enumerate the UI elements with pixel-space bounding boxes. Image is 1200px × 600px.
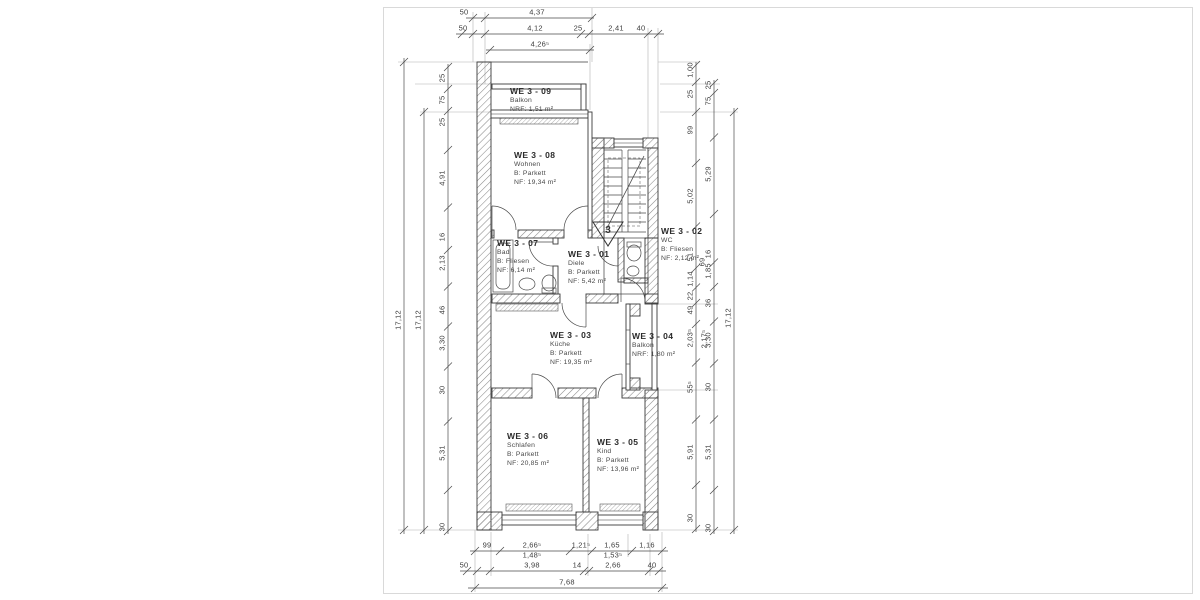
room-info-line: Wohnen bbox=[514, 161, 556, 170]
dimension-label: 2,66 bbox=[605, 561, 620, 570]
room-info-line: NF: 5,42 m² bbox=[568, 278, 609, 287]
dimension-label: 30 bbox=[438, 523, 447, 532]
dimension-label: 40 bbox=[637, 24, 646, 33]
room-label: WE 3 - 06SchlafenB: ParkettNF: 20,85 m² bbox=[507, 431, 549, 469]
room-info-line: NF: 13,96 m² bbox=[597, 466, 639, 475]
room-info-line: B: Fliesen bbox=[661, 246, 702, 255]
dimension-label: 25 bbox=[704, 81, 713, 90]
wc-sink-icon bbox=[627, 266, 639, 276]
dimension-label: 50 bbox=[460, 561, 469, 570]
room-info-line: B: Fliesen bbox=[497, 258, 538, 267]
wc-toilet-bowl-icon bbox=[627, 245, 641, 261]
dimension-label: 5,31 bbox=[704, 444, 713, 459]
dimension-label: 25 bbox=[574, 24, 583, 33]
dimension-label: 99 bbox=[483, 541, 492, 550]
room-info-line: B: Parkett bbox=[550, 350, 592, 359]
dimension-label: 5,31 bbox=[438, 445, 447, 460]
room-info-line: Kind bbox=[597, 448, 639, 457]
room-id: WE 3 - 01 bbox=[568, 249, 609, 260]
room-info-line: Balkon bbox=[510, 97, 553, 106]
room-label: WE 3 - 02WCB: FliesenNF: 2,12 m² bbox=[661, 226, 702, 264]
room-info-line: NRF: 1,51 m² bbox=[510, 106, 553, 115]
room-id: WE 3 - 03 bbox=[550, 330, 592, 341]
room-id: WE 3 - 06 bbox=[507, 431, 549, 442]
room-info-line: B: Parkett bbox=[507, 451, 549, 460]
dimension-label: 50 bbox=[460, 8, 469, 17]
room-label: WE 3 - 09BalkonNRF: 1,51 m² bbox=[510, 86, 553, 115]
room-id: WE 3 - 08 bbox=[514, 150, 556, 161]
dimension-label: 14 bbox=[573, 561, 582, 570]
dimension-label: 22 bbox=[686, 292, 695, 301]
dimension-label: 1,16 bbox=[639, 541, 654, 550]
dimension-label: 4,12 bbox=[527, 24, 542, 33]
room-info-line: Schlafen bbox=[507, 442, 549, 451]
dimension-label: 3,30 bbox=[438, 335, 447, 350]
room-info-line: NF: 19,35 m² bbox=[550, 359, 592, 368]
dimension-label: 55⁵ bbox=[686, 381, 695, 393]
dimension-label: 30 bbox=[438, 386, 447, 395]
dimension-label: 25 bbox=[686, 90, 695, 99]
dimension-label: 4,26⁵ bbox=[531, 40, 550, 49]
dimension-label: 1,48⁵ bbox=[523, 551, 542, 560]
storey-number: 3 bbox=[605, 225, 611, 236]
dimension-label: 4,37 bbox=[529, 8, 544, 17]
dimension-label: 2,17⁵ bbox=[700, 330, 709, 349]
dimension-label: 50 bbox=[459, 24, 468, 33]
dimension-label: 3,98 bbox=[524, 561, 539, 570]
room-id: WE 3 - 07 bbox=[497, 238, 538, 249]
dimension-label: 25 bbox=[438, 118, 447, 127]
dimension-label: 75 bbox=[704, 97, 713, 106]
room-info-line: NF: 6,14 m² bbox=[497, 267, 538, 276]
dimension-label: 75 bbox=[438, 96, 447, 105]
room-label: WE 3 - 04BalkonNRF: 1,80 m² bbox=[632, 331, 675, 360]
staircase bbox=[604, 150, 646, 232]
dimension-label: 36 bbox=[704, 299, 713, 308]
room-info-line: Balkon bbox=[632, 342, 675, 351]
room-info-line: NF: 19,34 m² bbox=[514, 179, 556, 188]
room-info-line: NF: 2,12 m² bbox=[661, 255, 702, 264]
wc-toilet-tank-icon bbox=[627, 242, 641, 247]
dimension-label: 17,12 bbox=[724, 308, 733, 328]
floorplan-sheet: 3 504,37504,12252,41404,26⁵992,66⁵1,21⁵1… bbox=[0, 0, 1200, 600]
room-info-line: Küche bbox=[550, 341, 592, 350]
dimension-label: 16 bbox=[438, 233, 447, 242]
room-id: WE 3 - 05 bbox=[597, 437, 639, 448]
room-label: WE 3 - 07BadB: FliesenNF: 6,14 m² bbox=[497, 238, 538, 276]
room-info-line: B: Parkett bbox=[568, 269, 609, 278]
dimension-label: 2,13 bbox=[438, 255, 447, 270]
dimension-label: 49 bbox=[686, 306, 695, 315]
dimension-label: 25 bbox=[438, 74, 447, 83]
dimension-label: 4,91 bbox=[438, 170, 447, 185]
sink-icon bbox=[519, 278, 535, 290]
dimension-label: 46 bbox=[438, 306, 447, 315]
dimension-label: 17,12 bbox=[394, 310, 403, 330]
dimension-label: 5,29 bbox=[704, 166, 713, 181]
dimension-label: 1,53⁵ bbox=[604, 551, 623, 560]
room-info-line: B: Parkett bbox=[514, 170, 556, 179]
dimension-label: 2,66⁵ bbox=[523, 541, 542, 550]
room-label: WE 3 - 03KücheB: ParkettNF: 19,35 m² bbox=[550, 330, 592, 368]
room-id: WE 3 - 02 bbox=[661, 226, 702, 237]
dimension-label: 30 bbox=[704, 524, 713, 533]
dimension-label: 17,12 bbox=[414, 310, 423, 330]
dimension-label: 99 bbox=[686, 126, 695, 135]
room-label: WE 3 - 01DieleB: ParkettNF: 5,42 m² bbox=[568, 249, 609, 287]
dimension-label: 2,41 bbox=[608, 24, 623, 33]
dimension-label: 30 bbox=[704, 383, 713, 392]
dimension-label: 30 bbox=[686, 514, 695, 523]
dimension-label: 1,65 bbox=[604, 541, 619, 550]
dimension-label: 5,02 bbox=[686, 188, 695, 203]
dimension-label: 1,21⁵ bbox=[572, 541, 591, 550]
room-info-line: NF: 20,85 m² bbox=[507, 460, 549, 469]
dimension-label: 2,03⁵ bbox=[686, 329, 695, 348]
room-info-line: Diele bbox=[568, 260, 609, 269]
dimension-label: 40 bbox=[648, 561, 657, 570]
dimension-label: 1,00 bbox=[686, 62, 695, 77]
dimension-label: 5,91 bbox=[686, 444, 695, 459]
room-label: WE 3 - 08WohnenB: ParkettNF: 19,34 m² bbox=[514, 150, 556, 188]
floorplan-drawing: 3 bbox=[0, 0, 1200, 600]
room-info-line: Bad bbox=[497, 249, 538, 258]
room-info-line: NRF: 1,80 m² bbox=[632, 351, 675, 360]
dimension-label: 1,14 bbox=[686, 271, 695, 286]
room-info-line: WC bbox=[661, 237, 702, 246]
room-label: WE 3 - 05KindB: ParkettNF: 13,96 m² bbox=[597, 437, 639, 475]
dimension-label: 7,68 bbox=[559, 578, 574, 587]
room-info-line: B: Parkett bbox=[597, 457, 639, 466]
room-id: WE 3 - 09 bbox=[510, 86, 553, 97]
room-id: WE 3 - 04 bbox=[632, 331, 675, 342]
